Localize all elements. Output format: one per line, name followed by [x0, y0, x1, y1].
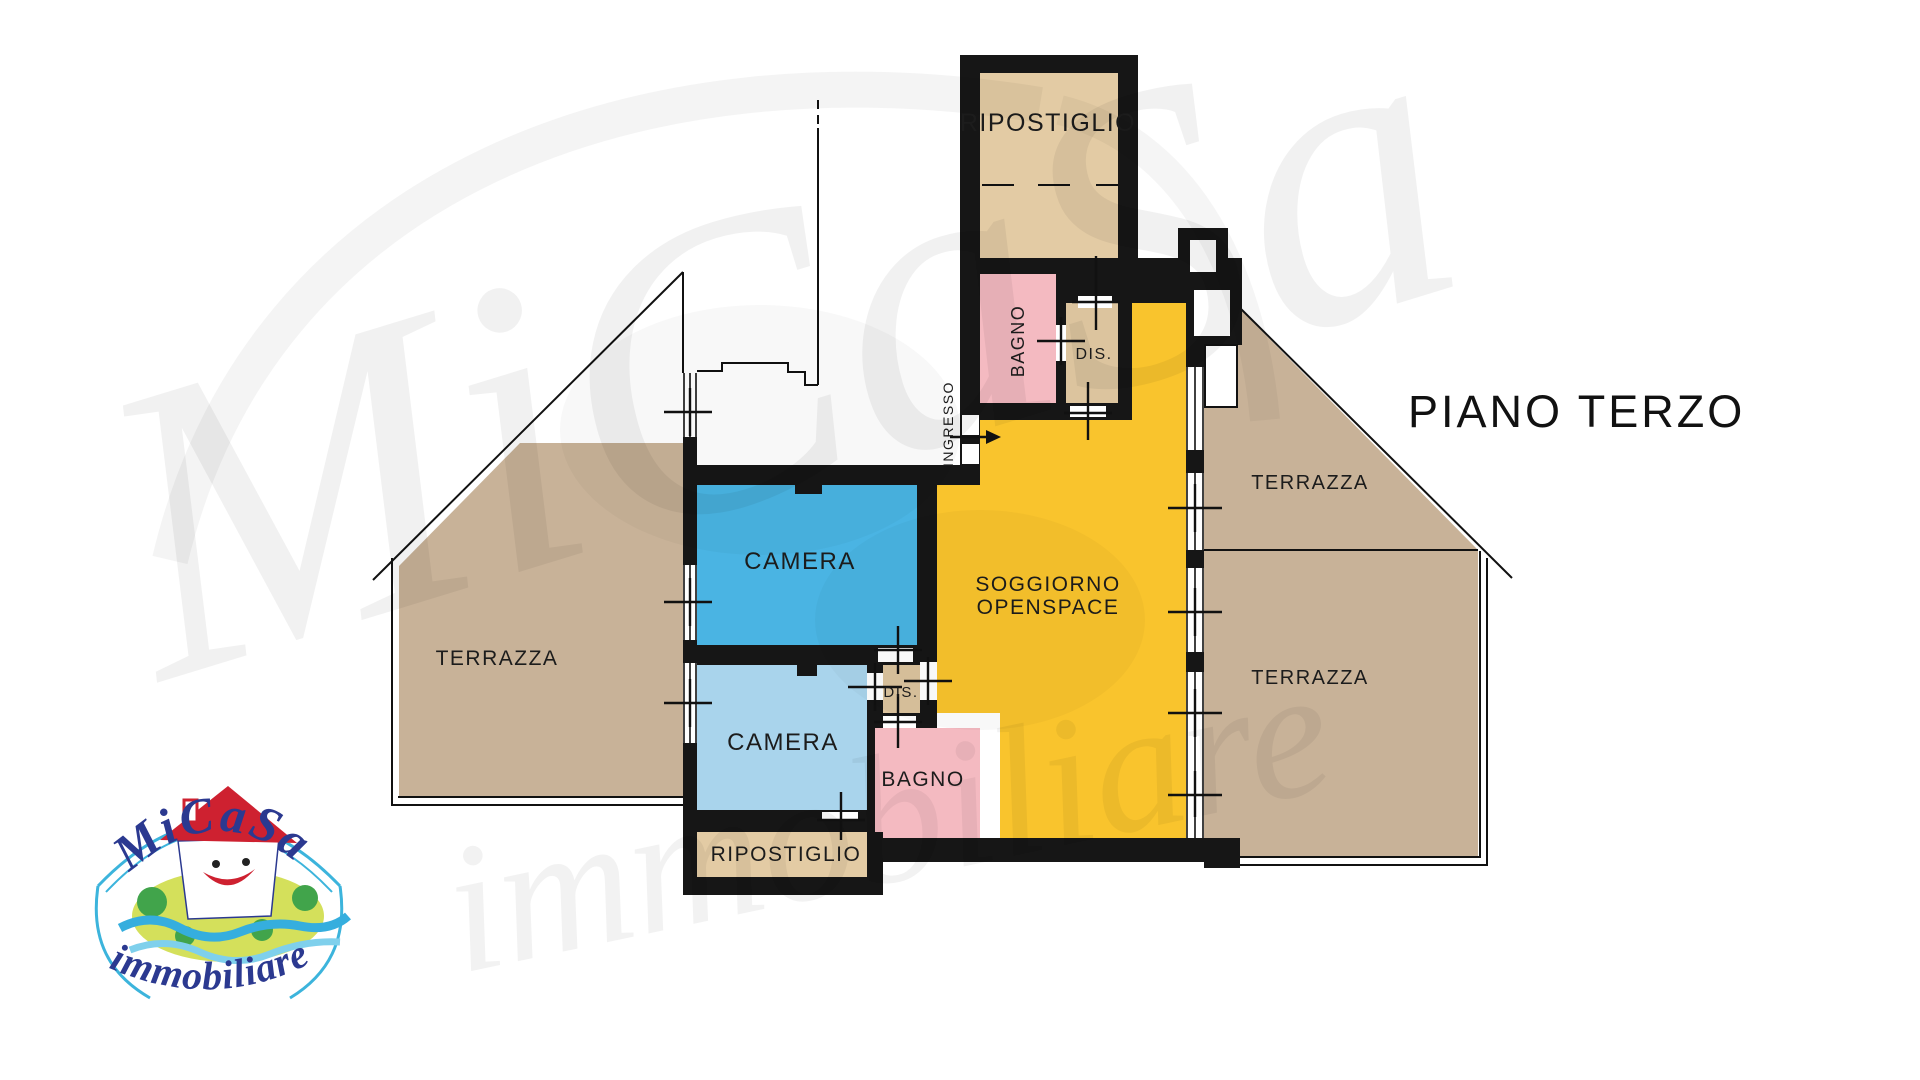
logo-house-eye	[212, 860, 220, 868]
label-soggiorno-line2: OPENSPACE	[977, 596, 1120, 619]
label-ripostiglio-bottom: RIPOSTIGLIO	[711, 843, 862, 866]
logo-tree	[137, 887, 167, 917]
label-camera-1: CAMERA	[744, 548, 856, 575]
floor-title: PIANO TERZO	[1408, 386, 1745, 437]
logo-house-eye	[242, 858, 250, 866]
label-camera-2: CAMERA	[727, 729, 839, 756]
label-terrazza-right-bottom: TERRAZZA	[1251, 667, 1369, 689]
boundary-steps	[697, 363, 818, 385]
door-leaf-tab	[795, 485, 822, 494]
label-dis-top: DIS.	[1075, 346, 1112, 363]
room-ripostiglio-top	[977, 72, 1118, 258]
label-ingresso: INGRESSO	[940, 381, 956, 467]
label-bagno-bottom: BAGNO	[881, 768, 964, 791]
floorplan-canvas: RIPOSTIGLIO BAGNO DIS. INGRESSO CAMERA C…	[0, 0, 1920, 1080]
label-dis-bottom: DIS.	[883, 684, 918, 701]
label-terrazza-right-top: TERRAZZA	[1251, 472, 1369, 494]
agency-logo: MiCaSa immobiliare	[96, 785, 348, 998]
label-terrazza-left: TERRAZZA	[436, 647, 559, 670]
label-soggiorno-line1: SOGGIORNO	[975, 573, 1120, 596]
terrace-left	[399, 443, 683, 796]
floorplan-page: RIPOSTIGLIO BAGNO DIS. INGRESSO CAMERA C…	[0, 0, 1920, 1080]
terrace-right-bottom	[1204, 551, 1478, 857]
label-bagno-top: BAGNO	[1008, 305, 1028, 378]
label-ripostiglio-top: RIPOSTIGLIO	[960, 109, 1136, 137]
window-wall-right	[1186, 303, 1204, 843]
door-leaf-tab	[797, 665, 817, 676]
wall-niche	[1205, 345, 1237, 407]
logo-tree	[292, 885, 318, 911]
